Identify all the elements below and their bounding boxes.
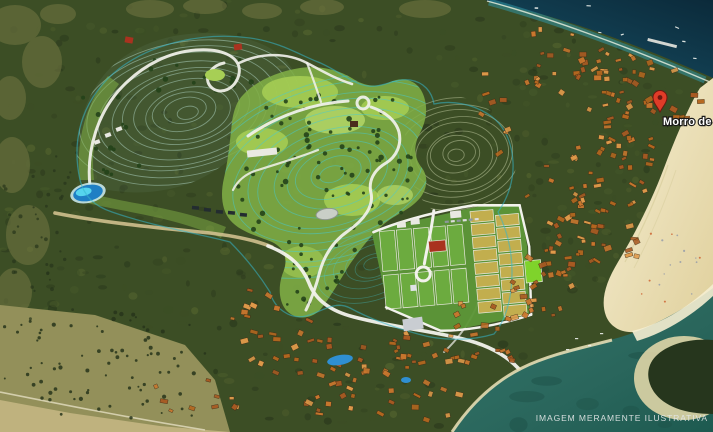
watermark-label: IMAGEM MERAMENTE ILUSTRATIVA xyxy=(536,413,708,423)
pin-label: Morro de xyxy=(663,116,712,128)
swimming-pool-small xyxy=(401,377,411,383)
aerial-masterplan-screenshot: Morro de IMAGEM MERAMENTE ILUSTRATIVA xyxy=(0,0,713,432)
aerial-map[interactable]: Morro de IMAGEM MERAMENTE ILUSTRATIVA xyxy=(0,0,713,432)
